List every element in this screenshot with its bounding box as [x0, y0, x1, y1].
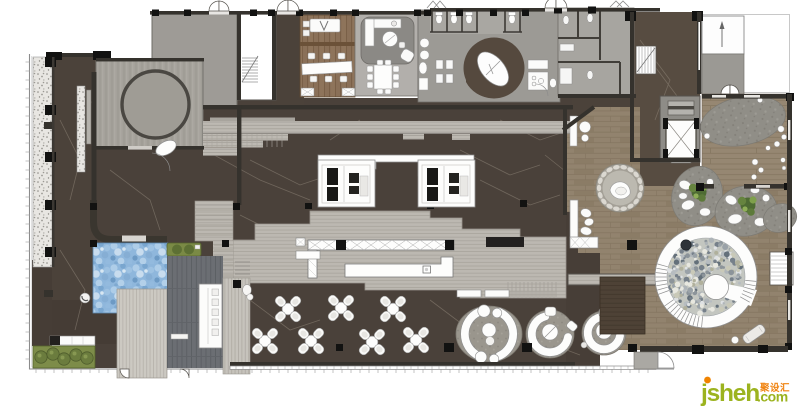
svg-text:聚设汇: 聚设汇 [759, 382, 790, 394]
svg-text:jsheh: jsheh [700, 380, 759, 406]
